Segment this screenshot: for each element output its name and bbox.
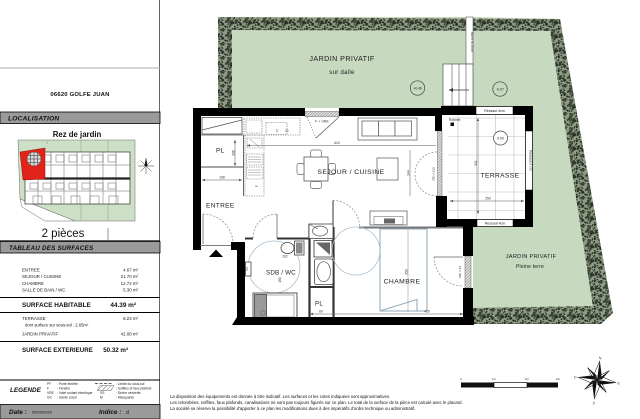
svg-text:SEJOUR / CUISINE: SEJOUR / CUISINE [22, 274, 61, 279]
svg-text:Indice :: Indice : [99, 409, 121, 416]
svg-text:06620 GOLFE JUAN: 06620 GOLFE JUAN [50, 92, 109, 98]
svg-text:-0.07: -0.07 [496, 88, 504, 92]
svg-text:PF: PF [47, 382, 51, 386]
svg-text:LOCALISATION: LOCALISATION [8, 116, 59, 123]
svg-text:SURFACE EXTERIEURE: SURFACE EXTERIEURE [22, 347, 93, 354]
svg-text:: Fenêtre: : Fenêtre [57, 387, 70, 391]
svg-text:TABLEAU DES SURFACES: TABLEAU DES SURFACES [9, 245, 94, 252]
svg-text:5.30 m²: 5.30 m² [123, 288, 138, 293]
svg-text:: Volet roulant électrique: : Volet roulant électrique [57, 391, 93, 395]
svg-text:Muret ht 40cm: Muret ht 40cm [470, 32, 474, 53]
svg-text:SALLE DE BAIN / WC: SALLE DE BAIN / WC [22, 288, 65, 293]
svg-text:8.23 m²: 8.23 m² [123, 316, 138, 321]
svg-text:44.39 m²: 44.39 m² [110, 302, 136, 309]
svg-text:30: 30 [285, 129, 289, 133]
svg-text:0.00: 0.00 [497, 137, 504, 141]
svg-text:250 x 34: 250 x 34 [458, 266, 462, 278]
svg-text:M: M [100, 396, 103, 400]
svg-text:PL: PL [216, 148, 225, 155]
svg-text:60: 60 [319, 310, 323, 314]
svg-text:F: F [255, 185, 259, 187]
svg-text:La société se réserve la possi: La société se réserve la possibilité d'a… [170, 406, 415, 411]
svg-text:331: 331 [474, 160, 478, 166]
svg-text:La disposition des équipements: La disposition des équipements est donné… [170, 394, 390, 399]
svg-text:ENTREE: ENTREE [22, 268, 40, 273]
svg-text:CHAMBRE: CHAMBRE [22, 281, 44, 286]
svg-text:05/09/2024: 05/09/2024 [32, 410, 53, 415]
svg-text:LEGENDE: LEGENDE [10, 387, 42, 394]
svg-text:+0.46: +0.46 [413, 87, 422, 91]
svg-text:4.67 m²: 4.67 m² [123, 268, 138, 273]
svg-text:Rez de jardin: Rez de jardin [53, 130, 102, 139]
svg-text:GC: GC [47, 396, 53, 400]
svg-text:12.72 m²: 12.72 m² [121, 281, 139, 286]
svg-text:Date :: Date : [9, 409, 27, 416]
svg-text:344: 344 [406, 170, 410, 176]
svg-text:250: 250 [485, 197, 491, 201]
svg-text:F: F [47, 387, 49, 391]
svg-text:TERRASSE: TERRASSE [22, 316, 46, 321]
svg-text:: Porte fenêtre: : Porte fenêtre [57, 382, 78, 386]
svg-text:262: 262 [282, 255, 288, 259]
svg-text:2m: 2m [525, 377, 530, 381]
svg-text:JARDIN PRIVATIF: JARDIN PRIVATIF [22, 332, 59, 337]
svg-text:250 x 215: 250 x 215 [432, 167, 436, 181]
svg-text:Ressaut 4cm: Ressaut 4cm [485, 222, 506, 226]
svg-text:: Sèche serviette: : Sèche serviette [116, 391, 141, 395]
svg-text:: Limite du sous-sol: : Limite du sous-sol [116, 382, 145, 386]
svg-text:ENTREE: ENTREE [206, 203, 235, 210]
svg-text:: Soffites et faux plafond: : Soffites et faux plafond [116, 387, 151, 391]
svg-text:Pleine terre: Pleine terre [516, 264, 544, 270]
svg-text:3m: 3m [556, 377, 561, 381]
svg-text:610: 610 [334, 141, 340, 145]
svg-text:F + VRE: F + VRE [315, 120, 329, 124]
svg-text:Les retombées, soffites, faux: Les retombées, soffites, faux plafonds, … [170, 400, 463, 405]
svg-text:: Garde corps: : Garde corps [57, 396, 77, 400]
svg-text:SURFACE HABITABLE: SURFACE HABITABLE [22, 302, 91, 309]
svg-text:42.08 m²: 42.08 m² [121, 332, 139, 337]
svg-text:: Masquante: : Masquante [116, 396, 134, 400]
svg-text:SDB / WC: SDB / WC [266, 270, 296, 277]
svg-text:2 pièces: 2 pièces [42, 228, 85, 240]
svg-text:sur dalle: sur dalle [329, 70, 355, 76]
svg-text:1m: 1m [492, 377, 497, 381]
svg-text:108: 108 [219, 176, 225, 180]
svg-text:TERRASSE: TERRASSE [481, 173, 520, 180]
svg-text:SS: SS [245, 267, 249, 271]
svg-text:PL: PL [315, 301, 323, 308]
svg-text:d: d [126, 410, 129, 416]
svg-text:180: 180 [278, 277, 282, 283]
svg-text:350: 350 [404, 269, 408, 275]
svg-text:JARDIN PRIVATIF: JARDIN PRIVATIF [309, 54, 374, 63]
svg-text:50.32 m²: 50.32 m² [103, 347, 128, 354]
svg-text:21.70 m²: 21.70 m² [121, 274, 139, 279]
svg-text:Ressaut 4cm: Ressaut 4cm [484, 109, 505, 113]
svg-text:VRE: VRE [47, 391, 55, 395]
svg-text:306: 306 [231, 150, 235, 156]
svg-text:CHAMBRE: CHAMBRE [384, 279, 421, 286]
svg-text:SEJOUR / CUISINE: SEJOUR / CUISINE [317, 169, 384, 176]
svg-text:Robinet: Robinet [449, 118, 460, 122]
svg-text:Ressaut 4 cm: Ressaut 4 cm [529, 150, 533, 170]
svg-text:420: 420 [424, 310, 430, 314]
svg-text:dont surface sur sous-sol : 2.: dont surface sur sous-sol : 2.65m² [25, 323, 89, 328]
svg-text:JARDIN PRIVATIF: JARDIN PRIVATIF [506, 254, 557, 260]
